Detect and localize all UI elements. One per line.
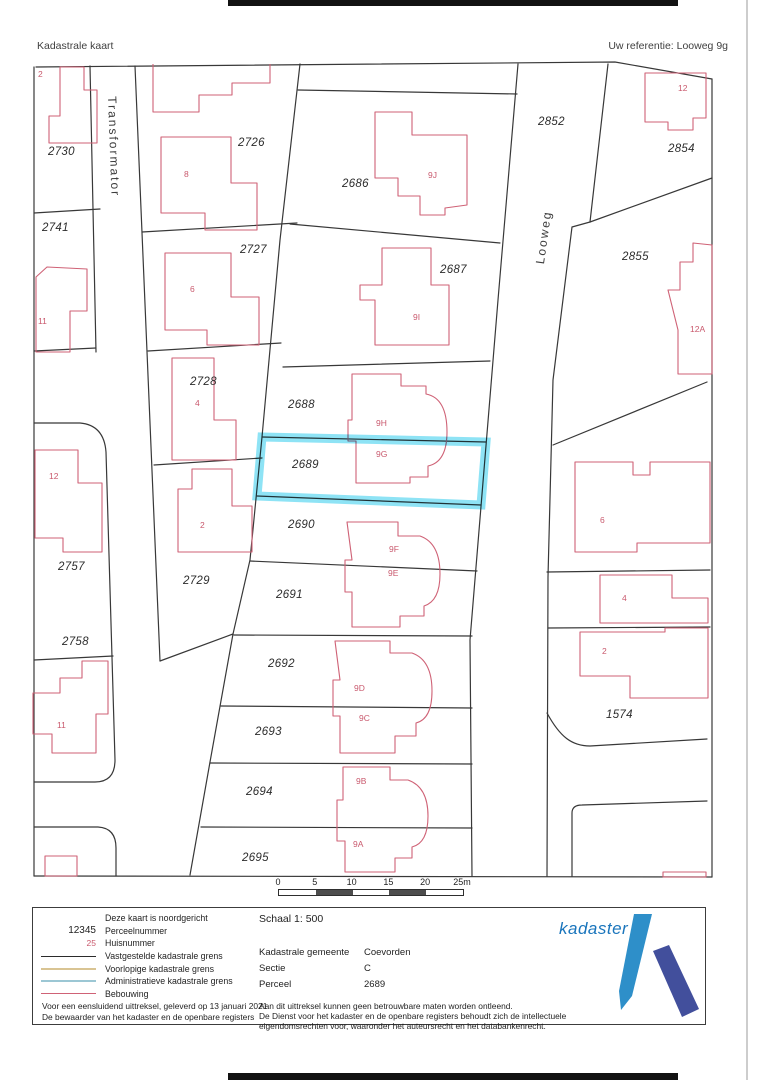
house-number-21-4: 4 bbox=[622, 593, 627, 603]
legend-row-vastgestelde-grens: Vastgestelde kadastrale grens bbox=[41, 950, 259, 963]
house-number-10-9h: 9H bbox=[376, 418, 387, 428]
info-box: Deze kaart is noordgericht 12345 Perceel… bbox=[32, 907, 706, 1025]
house-number-15-9c: 9C bbox=[359, 713, 370, 723]
legend-row-perceelnummer: 12345 Perceelnummer bbox=[41, 925, 259, 938]
scale-tick-20: 20 bbox=[420, 877, 430, 887]
house-number-17-9a: 9A bbox=[353, 839, 363, 849]
parcel-label-21-1574: 1574 bbox=[606, 709, 633, 721]
house-number-14-9d: 9D bbox=[354, 683, 365, 693]
house-number-4-8: 8 bbox=[184, 169, 189, 179]
parcel-label-19-2854: 2854 bbox=[668, 143, 695, 155]
scale-tick-25m: 25m bbox=[453, 877, 471, 887]
field-sectie: Sectie C bbox=[259, 963, 566, 979]
voorlopige-grens-label: Voorlopige kadastrale grens bbox=[105, 964, 214, 974]
parcel-label-5-2727: 2727 bbox=[240, 244, 267, 256]
legend-row-administratieve-grens: Administratieve kadastrale grens bbox=[41, 975, 259, 988]
scale-text: Schaal 1: 500 bbox=[259, 913, 566, 925]
disclaimer: Aan dit uittreksel kunnen geen betrouwba… bbox=[259, 1001, 566, 1031]
legend-row-north: Deze kaart is noordgericht bbox=[41, 912, 259, 925]
parcel-label-1-2741: 2741 bbox=[42, 222, 69, 234]
legend-row-bebouwing: Bebouwing bbox=[41, 988, 259, 1001]
house-number-11-9g: 9G bbox=[376, 449, 387, 459]
bebouwing-label: Bebouwing bbox=[105, 989, 149, 999]
administratieve-grens-line-sample bbox=[41, 980, 96, 982]
parcel-label-0-2730: 2730 bbox=[48, 146, 75, 158]
house-number-5-6: 6 bbox=[190, 284, 195, 294]
footnote-delivery-date: Voor een eensluidend uittreksel, gelever… bbox=[42, 1001, 267, 1012]
house-number-13-9e: 9E bbox=[388, 568, 398, 578]
parcel-label-14-2692: 2692 bbox=[268, 658, 295, 670]
legend-row-voorlopige-grens: Voorlopige kadastrale grens bbox=[41, 962, 259, 975]
vastgestelde-grens-line-sample bbox=[41, 956, 96, 957]
map-labels: 2730274127572758272627272728272926862687… bbox=[0, 0, 763, 890]
legend-footnotes: Voor een eensluidend uittreksel, gelever… bbox=[42, 1001, 267, 1022]
parcel-label-15-2693: 2693 bbox=[255, 726, 282, 738]
house-number-2-12: 12 bbox=[49, 471, 58, 481]
house-number-9-9i: 9I bbox=[413, 312, 420, 322]
parcel-label-13-2691: 2691 bbox=[276, 589, 303, 601]
house-number-6-4: 4 bbox=[195, 398, 200, 408]
parcel-label-11-2689: 2689 bbox=[292, 459, 319, 471]
scale-tick-15: 15 bbox=[383, 877, 393, 887]
scale-tick-10: 10 bbox=[347, 877, 357, 887]
parcel-label-4-2726: 2726 bbox=[238, 137, 265, 149]
parcel-info: Schaal 1: 500 Kadastrale gemeente Coevor… bbox=[259, 913, 566, 1031]
perceelnummer-label: Perceelnummer bbox=[105, 926, 167, 936]
street-label-0-transformator: Transformator bbox=[105, 96, 123, 197]
huisnummer-label: Huisnummer bbox=[105, 938, 155, 948]
house-number-8-9j: 9J bbox=[428, 170, 437, 180]
house-number-16-9b: 9B bbox=[356, 776, 366, 786]
house-number-19-12a: 12A bbox=[690, 324, 705, 334]
parcel-label-7-2729: 2729 bbox=[183, 575, 210, 587]
scale-bar-segments bbox=[278, 889, 464, 896]
parcel-label-16-2694: 2694 bbox=[246, 786, 273, 798]
parcel-label-9-2687: 2687 bbox=[440, 264, 467, 276]
scale-bar: 0510152025m bbox=[278, 877, 462, 899]
vastgestelde-grens-label: Vastgestelde kadastrale grens bbox=[105, 951, 223, 961]
parcel-label-18-2852: 2852 bbox=[538, 116, 565, 128]
legend-row-huisnummer: 25 Huisnummer bbox=[41, 937, 259, 950]
cadastral-map: 2730274127572758272627272728272926862687… bbox=[0, 0, 763, 890]
house-number-20-6: 6 bbox=[600, 515, 605, 525]
parcel-label-20-2855: 2855 bbox=[622, 251, 649, 263]
bebouwing-line-sample bbox=[41, 993, 96, 994]
administratieve-grens-label: Administratieve kadastrale grens bbox=[105, 976, 233, 986]
house-number-7-2: 2 bbox=[200, 520, 205, 530]
house-number-12-9f: 9F bbox=[389, 544, 399, 554]
field-gemeente: Kadastrale gemeente Coevorden bbox=[259, 947, 566, 963]
parcel-label-3-2758: 2758 bbox=[62, 636, 89, 648]
north-note: Deze kaart is noordgericht bbox=[105, 913, 208, 923]
parcel-label-2-2757: 2757 bbox=[58, 561, 85, 573]
house-number-3-11: 11 bbox=[57, 720, 66, 730]
parcel-label-8-2686: 2686 bbox=[342, 178, 369, 190]
scale-tick-5: 5 bbox=[312, 877, 317, 887]
parcel-info-fields: Kadastrale gemeente Coevorden Sectie C P… bbox=[259, 947, 566, 995]
street-label-1-looweg: Looweg bbox=[533, 209, 554, 264]
house-number-18-12: 12 bbox=[678, 83, 687, 93]
kadaster-logo-icon bbox=[608, 910, 713, 1022]
house-number-0-2: 2 bbox=[38, 69, 43, 79]
house-number-1-11: 11 bbox=[38, 316, 47, 326]
huisnummer-sample: 25 bbox=[41, 938, 96, 948]
legend: Deze kaart is noordgericht 12345 Perceel… bbox=[41, 912, 259, 1000]
parcel-label-17-2695: 2695 bbox=[242, 852, 269, 864]
voorlopige-grens-line-sample bbox=[41, 968, 96, 970]
footnote-keeper: De bewaarder van het kadaster en de open… bbox=[42, 1012, 267, 1023]
field-perceel: Perceel 2689 bbox=[259, 979, 566, 995]
perceelnummer-sample: 12345 bbox=[41, 925, 96, 936]
house-number-22-2: 2 bbox=[602, 646, 607, 656]
scale-tick-0: 0 bbox=[275, 877, 280, 887]
scan-artifact-bottom-bar bbox=[228, 1073, 678, 1080]
parcel-label-10-2688: 2688 bbox=[288, 399, 315, 411]
parcel-label-12-2690: 2690 bbox=[288, 519, 315, 531]
parcel-label-6-2728: 2728 bbox=[190, 376, 217, 388]
